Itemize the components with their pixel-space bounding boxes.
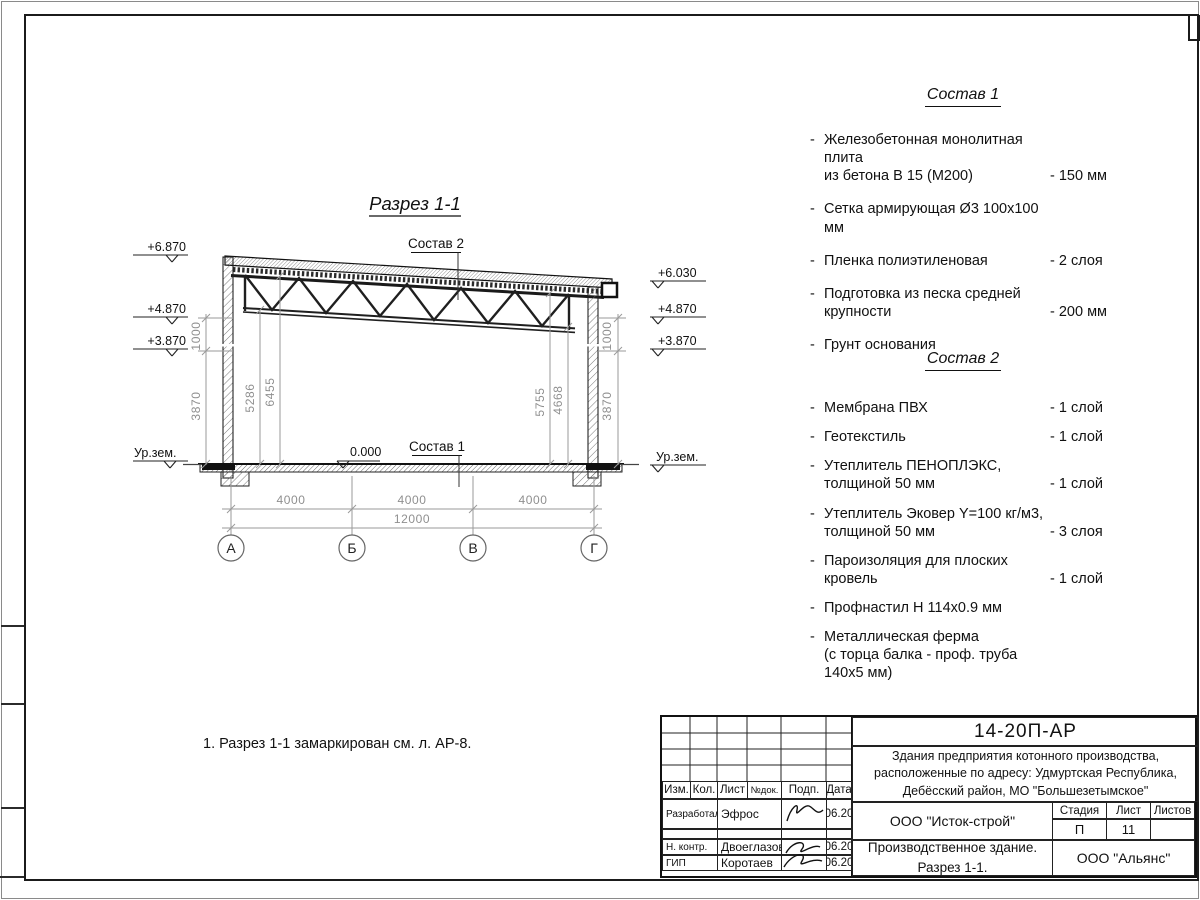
item-dash: - [810,285,820,321]
steel-truss [243,275,575,332]
item-value: - 1 слой [1050,399,1116,417]
ground-level-label-right: Ур.зем. [656,450,698,464]
stage-header: Стадия [1052,802,1107,819]
name-cell: Коротаев [717,855,782,871]
item-dash: - [810,599,820,617]
dim-right-1000: 1000 [600,321,614,350]
dim-5286: 5286 [243,383,257,412]
dim-span-3: 4000 [518,493,547,507]
item-name: Геотекстиль [824,428,1046,446]
axis-a: А [226,540,236,556]
item-dash: - [810,552,820,588]
sostav1-panel: Состав 1 -Железобетонная монолитная плит… [810,86,1116,369]
title-block: Изм. Кол. Лист №док. Подп. Дата Разработ… [660,715,1197,878]
section-title: Разрез 1-1 [369,193,461,214]
sostav2-panel: Состав 2 -Мембрана ПВХ- 1 слой -Геотекст… [810,350,1116,694]
axis-g: Г [590,540,598,556]
date-cell: 06.20 [826,839,852,855]
drawing-sheet: Разрез 1-1 [0,0,1200,900]
ground-level-label-left: Ур.зем. [134,446,176,460]
dim-total-12000: 12000 [394,512,430,526]
sostav2-title: Состав 2 [810,350,1116,371]
item-name: Утеплитель Эковер Y=100 кг/м3, толщиной … [824,505,1046,541]
item-dash: - [810,428,820,446]
sostav2-items: -Мембрана ПВХ- 1 слой -Геотекстиль- 1 сл… [810,399,1116,683]
wall-joint [587,344,599,347]
list-item: -Подготовка из песка средней крупности- … [810,285,1116,321]
left-wall [223,257,233,478]
sostav2-callout: Состав 2 [408,236,464,251]
object-title: Производственное здание. Разрез 1-1. [852,840,1053,876]
date-cell: 06.20 [826,799,852,829]
list-item: -Утеплитель ПЕНОПЛЭКС, толщиной 50 мм- 1… [810,457,1116,493]
drawing-note: 1. Разрез 1-1 замаркирован см. л. АР-8. [203,736,471,752]
role-cell: ГИП [662,855,718,871]
col-header-data: Дата [826,781,852,799]
elev-left-3870: +3.870 [147,334,186,348]
axis-b: Б [347,540,356,556]
item-value: - 3 слоя [1050,523,1116,541]
wall-joint [222,344,234,347]
item-value: - 150 мм [1050,167,1116,185]
item-name: Профнастил Н 114х0.9 мм [824,599,1046,617]
item-value: - 200 мм [1050,303,1116,321]
elev-right-6030: +6.030 [658,266,697,280]
right-footing [573,472,601,486]
dim-right-3870: 3870 [600,391,614,420]
col-header-list: Лист [717,781,748,799]
item-name: Пленка полиэтиленовая [824,252,1046,270]
item-name: Железобетонная монолитная плита из бетон… [824,131,1046,185]
list-item: -Пленка полиэтиленовая- 2 слоя [810,252,1116,270]
empty-cell [826,829,852,839]
zero-level-label: 0.000 [350,445,381,459]
empty-cell [717,829,782,839]
item-value: - 1 слой [1050,428,1116,446]
axis-bubbles: А Б В Г [218,535,607,561]
dim-span-1: 4000 [276,493,305,507]
item-dash: - [810,628,820,682]
elev-right-4870: +4.870 [658,302,697,316]
item-dash: - [810,131,820,185]
col-header-kol: Кол. [690,781,718,799]
elev-right-3870: +3.870 [658,334,697,348]
col-header-ndok: №док. [747,781,782,799]
item-name: Утеплитель ПЕНОПЛЭКС, толщиной 50 мм [824,457,1046,493]
signature-scribble [778,835,828,875]
left-footing [221,472,249,486]
item-value: - 1 слой [1050,570,1116,588]
sostav1-callout: Состав 1 [409,439,465,454]
sheets-total-value [1150,819,1195,840]
sheet-value: 11 [1106,819,1151,840]
dim-5755: 5755 [533,387,547,416]
list-item: -Металлическая ферма (с торца балка - пр… [810,628,1116,682]
item-dash: - [810,200,820,236]
item-name: Мембрана ПВХ [824,399,1046,417]
item-name: Пароизоляция для плоских кровель [824,552,1046,588]
item-dash: - [810,399,820,417]
item-dash: - [810,457,820,493]
design-organization: ООО "Исток-строй" [852,802,1053,840]
item-value: - 2 слоя [1050,252,1116,270]
item-dash: - [810,505,820,541]
right-wall [588,287,598,478]
stage-value: П [1052,819,1107,840]
name-cell: Двоеглазов [717,839,782,855]
elev-left-6870: +6.870 [147,240,186,254]
list-item: -Утеплитель Эковер Y=100 кг/м3, толщиной… [810,505,1116,541]
sheets-total-header: Листов [1150,802,1195,819]
item-name: Металлическая ферма (с торца балка - про… [824,628,1046,682]
date-cell: 06.20 [826,855,852,871]
sheet-header: Лист [1106,802,1151,819]
project-description: Здания предприятия котонного производств… [852,746,1199,802]
item-name: Сетка армирующая Ø3 100х100 мм [824,200,1046,236]
contractor-organization: ООО "Альянс" [1052,840,1195,876]
list-item: -Геотекстиль- 1 слой [810,428,1116,446]
revision-grid [662,717,852,781]
list-item: -Пароизоляция для плоских кровель- 1 сло… [810,552,1116,588]
role-cell: Н. контр. [662,839,718,855]
role-cell: Разработал [662,799,718,829]
dim-left-1000: 1000 [189,321,203,350]
document-number: 14-20П-АР [852,717,1199,746]
empty-cell [662,829,718,839]
item-value: - 1 слой [1050,475,1116,493]
dim-6455: 6455 [263,377,277,406]
dim-4668: 4668 [551,385,565,414]
dim-span-2: 4000 [397,493,426,507]
dim-left-3870: 3870 [189,391,203,420]
sostav1-items: -Железобетонная монолитная плита из бето… [810,131,1116,354]
elev-left-4870: +4.870 [147,302,186,316]
item-dash: - [810,252,820,270]
signature-scribble [781,797,827,829]
list-item: -Железобетонная монолитная плита из бето… [810,131,1116,185]
sostav1-title: Состав 1 [810,86,1116,107]
list-item: -Мембрана ПВХ- 1 слой [810,399,1116,417]
name-cell: Эфрос [717,799,782,829]
edge-beam [602,283,617,297]
roof-slab [225,256,612,288]
list-item: -Сетка армирующая Ø3 100х100 мм [810,200,1116,236]
floor-slab [200,464,622,472]
axis-v: В [468,540,477,556]
item-name: Подготовка из песка средней крупности [824,285,1046,321]
col-header-izm: Изм. [662,781,691,799]
list-item: -Профнастил Н 114х0.9 мм [810,599,1116,617]
